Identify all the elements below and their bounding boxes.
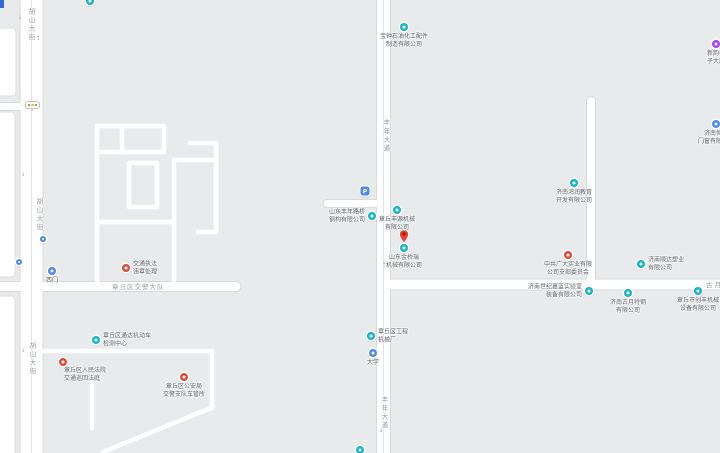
poi-label: 中共广大实业有限 公司支部委员会 bbox=[544, 261, 592, 276]
west-blocks bbox=[0, 28, 16, 453]
company-icon bbox=[624, 289, 632, 297]
bus-stop-icon bbox=[40, 236, 46, 242]
poi-label: 济南鸿润教育 开发有限公司 bbox=[556, 189, 592, 204]
company-icon bbox=[393, 206, 401, 214]
poi-label: 章丘市创丰机械 设备有限公司 bbox=[677, 297, 719, 312]
government-icon bbox=[180, 373, 188, 381]
one-way-arrow-icon: ↓ bbox=[20, 172, 25, 178]
one-way-arrow-icon: ↓ bbox=[20, 348, 25, 354]
government-icon bbox=[59, 358, 67, 366]
stop-icon bbox=[369, 349, 377, 357]
company-icon bbox=[368, 212, 376, 220]
red-pin-icon bbox=[399, 229, 410, 248]
company-icon bbox=[367, 332, 375, 340]
company-icon bbox=[694, 287, 702, 295]
party-branch-icon bbox=[564, 251, 572, 259]
poi-label: 章丘区人民法院 交通巡回法庭 bbox=[64, 367, 106, 382]
road-label-guyue-road: 古月路 bbox=[706, 279, 720, 289]
company-icon bbox=[637, 260, 645, 268]
ui-fragment-blue bbox=[0, 0, 4, 8]
poi-label: 济南恒达 门窗有限公司 bbox=[698, 130, 720, 145]
poi-label: 交通执法 违章处理 bbox=[133, 261, 157, 276]
company-icon bbox=[400, 23, 408, 31]
traffic-light-icon bbox=[25, 101, 40, 109]
road-casings bbox=[0, 0, 720, 453]
company-icon bbox=[570, 179, 578, 187]
poi-label: 大学 bbox=[367, 359, 379, 367]
one-way-arrow-icon: ↓ bbox=[17, 15, 22, 21]
poi-label: 章丘区工程 机械厂 bbox=[378, 329, 408, 344]
parking-icon: P bbox=[361, 187, 370, 196]
road-centerlines bbox=[32, 0, 384, 453]
poi-label: 新韵电 子大厦 bbox=[707, 50, 720, 65]
poi-label: 章丘区通达机动车 检测中心 bbox=[103, 333, 151, 348]
road-label-fengnian-avenue-1: 丰年大道 bbox=[381, 119, 391, 153]
one-way-arrow-icon: ↓ bbox=[378, 428, 383, 434]
company-icon bbox=[585, 287, 593, 295]
roads-layer bbox=[0, 0, 720, 453]
poi-label: 济南顺达塑业 有限公司 bbox=[648, 257, 684, 272]
road-label-hushan-street-3: 胡山大街 bbox=[27, 342, 37, 376]
area-label-traffic-police-brigade: 章丘区交警大队 bbox=[112, 281, 165, 291]
company-icon bbox=[356, 446, 364, 453]
one-way-arrow-icon: ↑ bbox=[35, 36, 40, 42]
poi-label: 宝钟石油化工配件 制造有限公司 bbox=[380, 33, 428, 48]
road-label-fengnian-avenue-2: 丰年大道 bbox=[379, 396, 389, 430]
poi-label: 章丘区公安局 交警支队车管所 bbox=[163, 383, 205, 398]
map-canvas[interactable]: 胡山大街 胡山大街 胡山大街 丰年大道 丰年大道 古月路 章丘区交警大队 ↓ ↑… bbox=[0, 0, 720, 453]
poi-label: 山东丰年路桥 钢构有限公司 bbox=[329, 209, 365, 224]
gate-icon bbox=[48, 267, 56, 275]
road-fills bbox=[0, 0, 720, 453]
poi-label: 济南世纪嘉蓝实验室 装备有限公司 bbox=[528, 284, 582, 299]
poi-label: 章丘丰源机械 有限公司 bbox=[379, 216, 415, 231]
poi-label: 济南古月特钢 有限公司 bbox=[610, 299, 646, 314]
bus-stop-icon bbox=[16, 259, 22, 265]
poi-label: 山东金桥瑞 机械有限公司 bbox=[386, 254, 422, 269]
service-icon bbox=[122, 264, 130, 272]
road-label-hushan-street-2: 胡山大街 bbox=[34, 198, 44, 232]
building-icon bbox=[712, 40, 720, 48]
company-icon bbox=[92, 336, 100, 344]
company-icon bbox=[712, 120, 720, 128]
poi-label: 西门 bbox=[46, 277, 58, 285]
